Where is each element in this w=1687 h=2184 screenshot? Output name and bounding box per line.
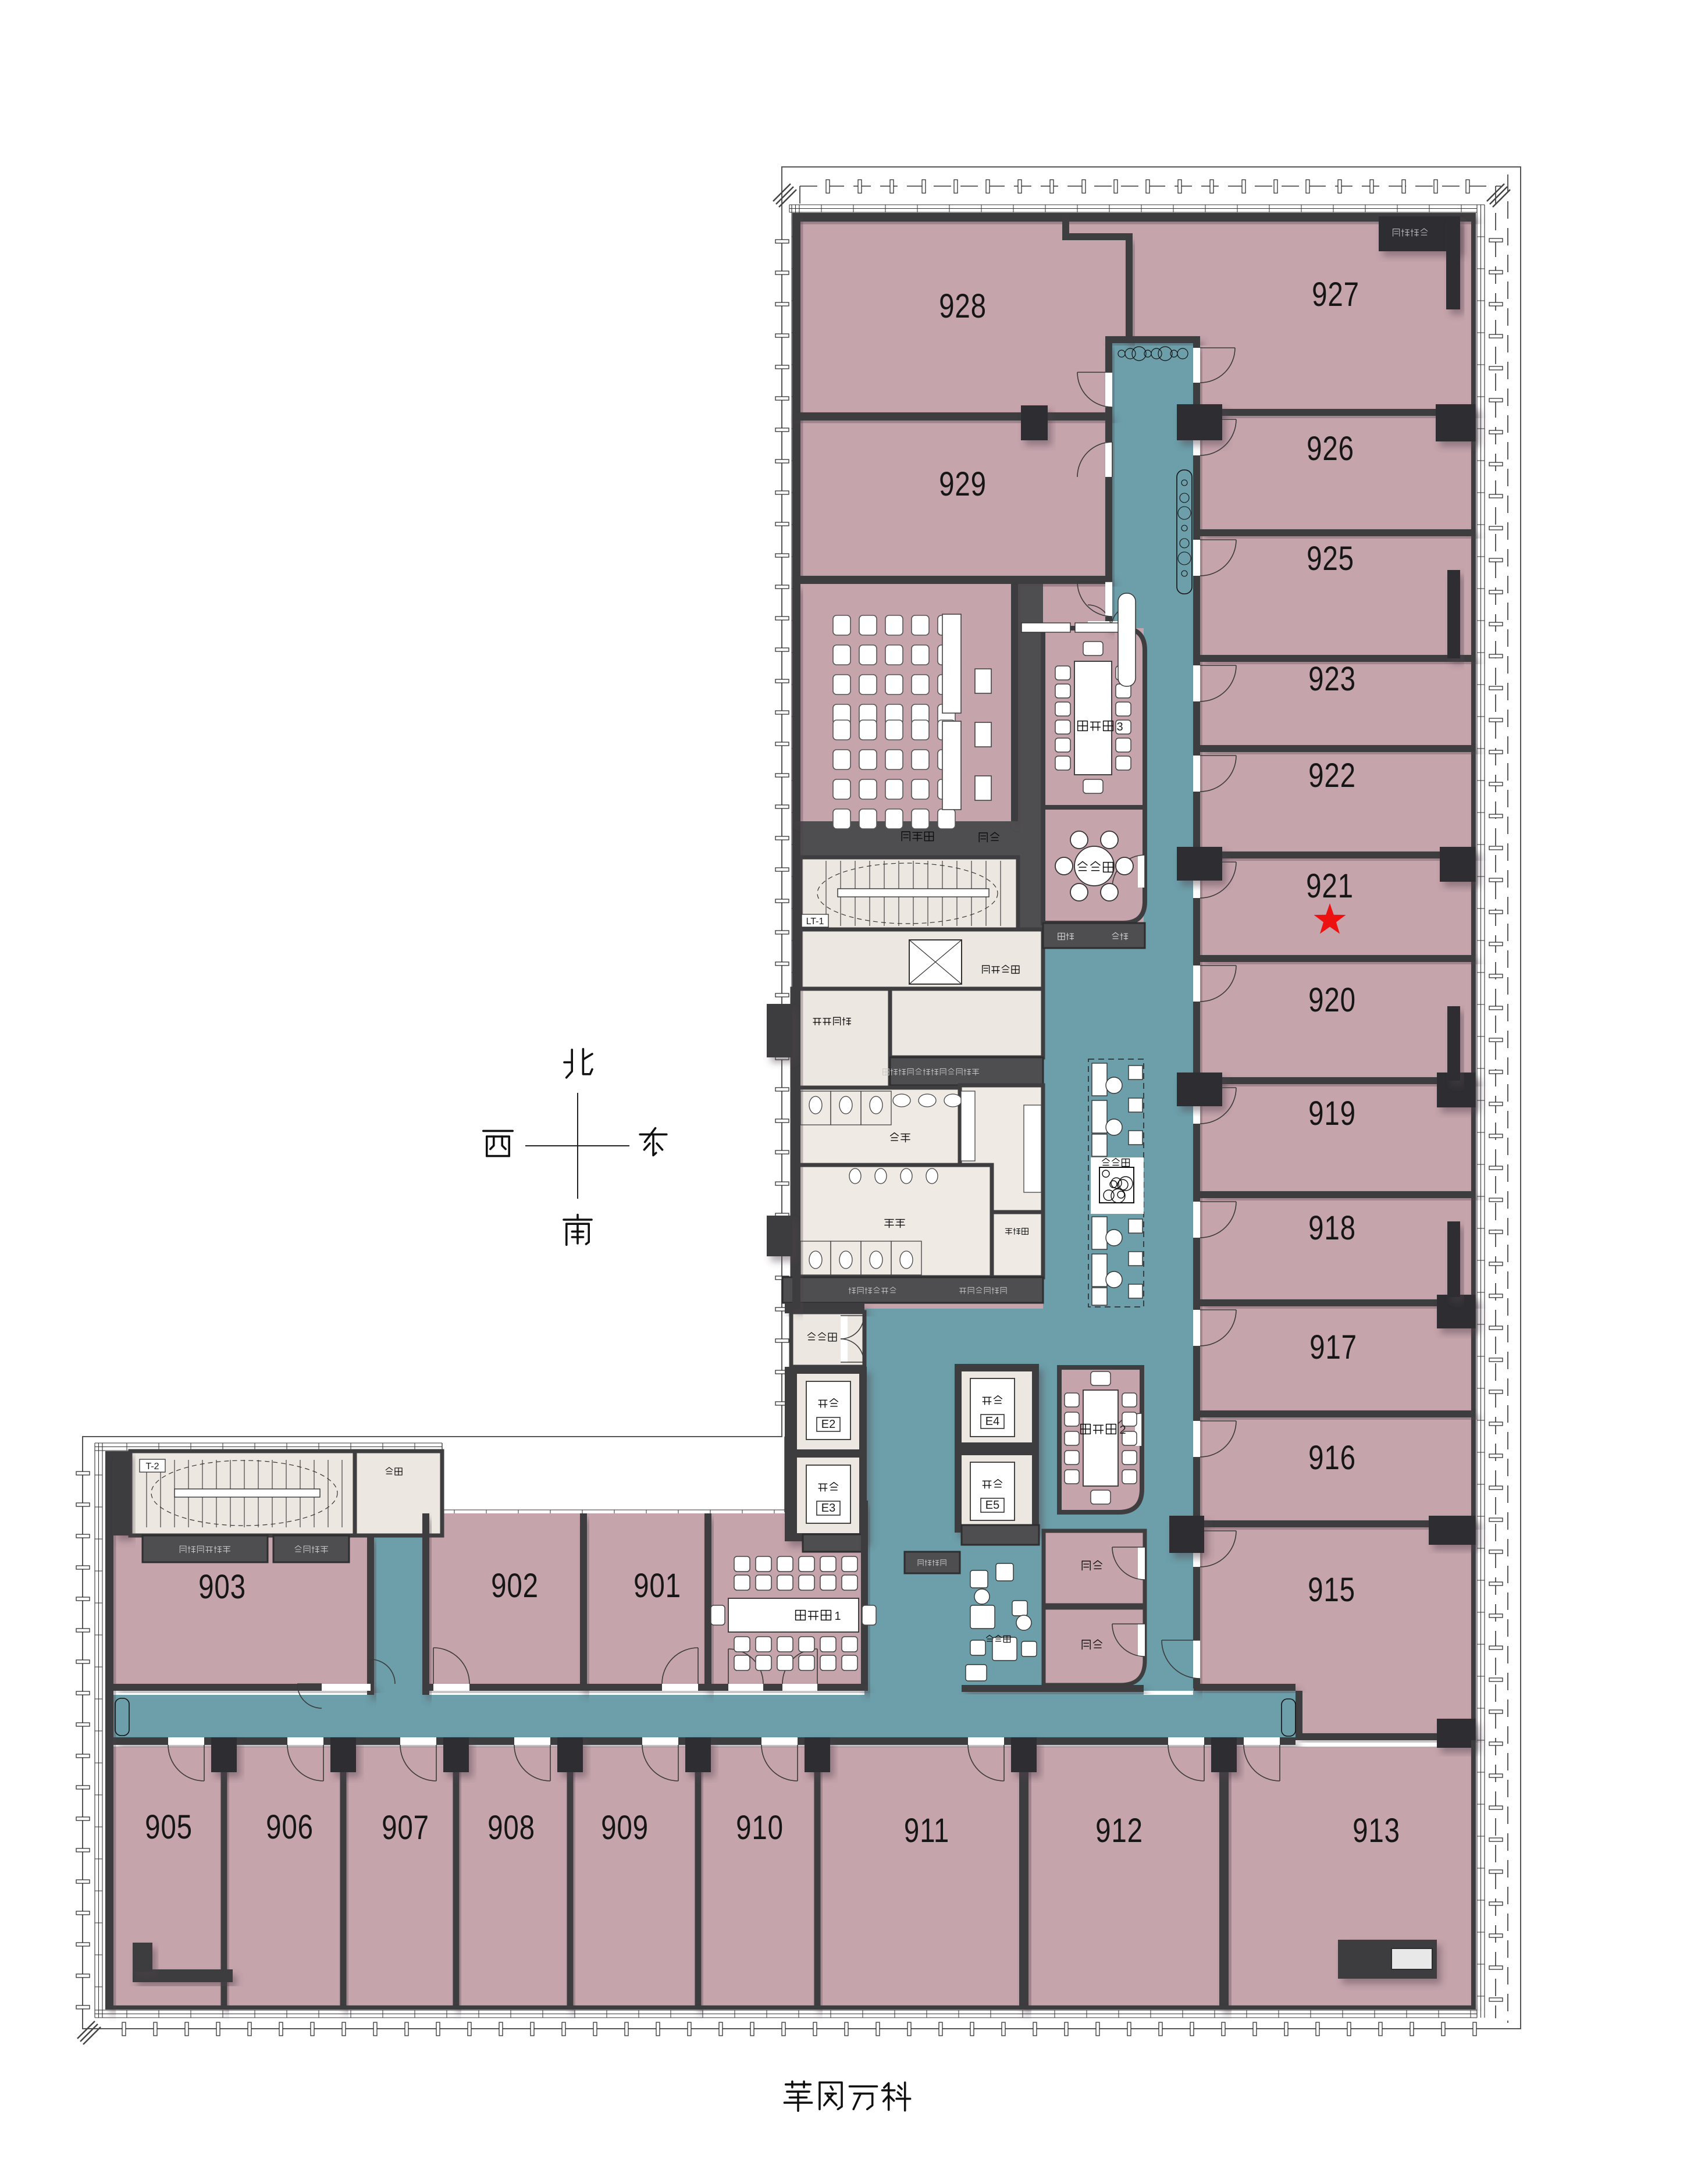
svg-text:916: 916	[1308, 1440, 1356, 1477]
svg-text:928: 928	[939, 288, 987, 326]
svg-text:926: 926	[1307, 430, 1354, 468]
svg-text:E2: E2	[821, 1418, 835, 1431]
svg-text:925: 925	[1307, 540, 1354, 578]
svg-text:E5: E5	[985, 1499, 999, 1512]
svg-text:921: 921	[1306, 868, 1354, 906]
svg-text:907: 907	[382, 1809, 429, 1847]
svg-text:1: 1	[834, 1610, 841, 1623]
svg-text:906: 906	[266, 1809, 314, 1847]
svg-text:3: 3	[1116, 721, 1123, 733]
svg-text:903: 903	[198, 1569, 246, 1606]
svg-text:LT-1: LT-1	[806, 917, 824, 927]
svg-text:917: 917	[1309, 1329, 1357, 1367]
svg-text:913: 913	[1353, 1812, 1400, 1850]
svg-text:910: 910	[736, 1809, 784, 1847]
svg-text:E4: E4	[985, 1415, 999, 1428]
svg-text:2: 2	[1119, 1424, 1126, 1437]
svg-text:912: 912	[1095, 1812, 1143, 1850]
svg-text:901: 901	[633, 1567, 681, 1605]
svg-text:902: 902	[491, 1567, 539, 1605]
svg-text:918: 918	[1308, 1210, 1356, 1248]
svg-text:905: 905	[145, 1809, 193, 1847]
svg-text:T-2: T-2	[145, 1462, 159, 1472]
svg-text:923: 923	[1308, 661, 1356, 699]
svg-text:E3: E3	[821, 1502, 835, 1515]
svg-text:919: 919	[1308, 1095, 1356, 1133]
svg-text:909: 909	[601, 1809, 649, 1847]
svg-text:915: 915	[1308, 1572, 1355, 1609]
svg-text:920: 920	[1308, 982, 1356, 1020]
svg-text:908: 908	[487, 1809, 535, 1847]
svg-text:929: 929	[939, 466, 987, 504]
svg-text:911: 911	[904, 1812, 949, 1850]
svg-text:922: 922	[1308, 757, 1356, 795]
svg-text:927: 927	[1312, 276, 1359, 314]
